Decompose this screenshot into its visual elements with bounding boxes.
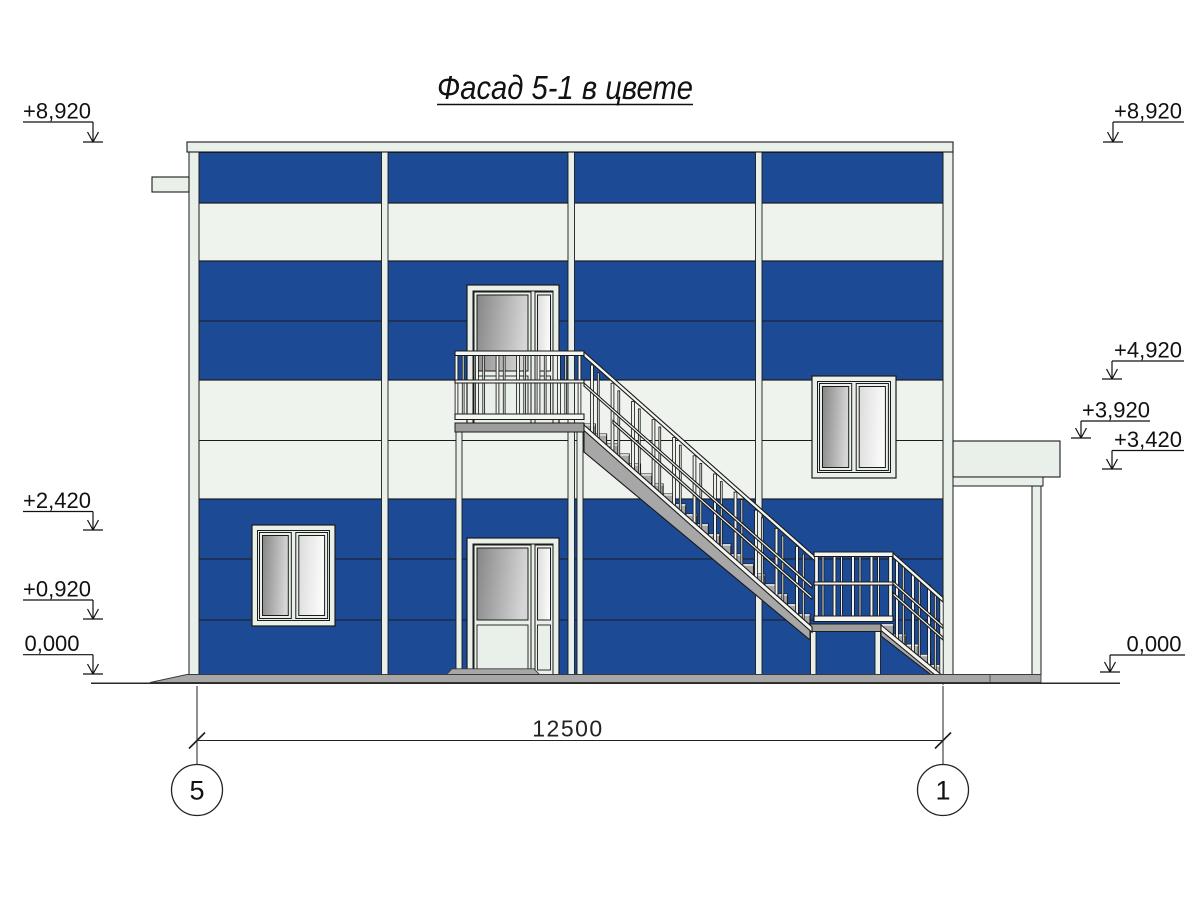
svg-text:+3,920: +3,920 — [1082, 398, 1150, 423]
svg-text:0,000: 0,000 — [1126, 632, 1181, 657]
svg-text:Фасад 5-1 в цвете: Фасад 5-1 в цвете — [437, 69, 693, 106]
svg-text:12500: 12500 — [532, 716, 603, 742]
svg-text:+2,420: +2,420 — [23, 488, 91, 513]
svg-text:+0,920: +0,920 — [23, 577, 91, 602]
svg-text:1: 1 — [935, 776, 950, 806]
svg-text:+3,420: +3,420 — [1114, 427, 1182, 452]
svg-text:+8,920: +8,920 — [23, 99, 91, 124]
svg-text:+4,920: +4,920 — [1114, 338, 1182, 363]
svg-text:+8,920: +8,920 — [1114, 99, 1182, 124]
svg-text:0,000: 0,000 — [24, 631, 79, 656]
svg-text:5: 5 — [189, 776, 204, 806]
